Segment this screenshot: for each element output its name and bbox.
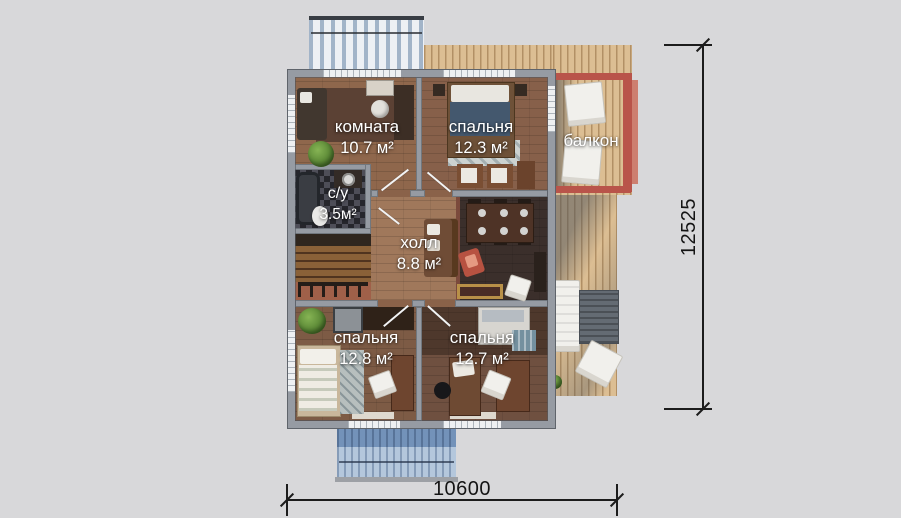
- room-area: 8.8 м²: [364, 254, 474, 275]
- room-area: 12.7 м²: [427, 349, 537, 370]
- roof-top-snowguard: [311, 32, 422, 34]
- room-area: 12.3 м²: [426, 138, 536, 159]
- window: [443, 70, 515, 77]
- room-label-hall: холл 8.8 м²: [364, 232, 474, 276]
- room-label-komnata: комната 10.7 м²: [312, 116, 422, 160]
- balcony-rail-top: [553, 73, 631, 80]
- floor-plan: комната 10.7 м² спальня 12.3 м² балкон с…: [0, 0, 901, 518]
- room-name: с/у: [288, 184, 388, 205]
- room-label-bedroom-top: спальня 12.3 м²: [426, 116, 536, 160]
- dimension-value-width: 10600: [402, 478, 522, 500]
- balcony-rail-bottom: [553, 186, 631, 193]
- room-label-bedroom-left: спальня 12.8 м²: [311, 327, 421, 371]
- window: [288, 330, 295, 392]
- daybed: [579, 290, 619, 344]
- window: [443, 421, 501, 428]
- room-name: комната: [312, 116, 422, 138]
- window: [323, 70, 401, 77]
- room-name: холл: [364, 232, 474, 254]
- room-name: спальня: [427, 327, 537, 349]
- balcony-door: [548, 86, 555, 132]
- room-area: 10.7 м²: [312, 138, 422, 159]
- window: [348, 421, 400, 428]
- room-name: спальня: [426, 116, 536, 138]
- room-label-bedroom-right: спальня 12.7 м²: [427, 327, 537, 371]
- dimension-value-height: 12525: [678, 177, 700, 277]
- window: [288, 95, 295, 153]
- roof-bottom-snowguard: [339, 461, 454, 463]
- room-label-balcony: балкон: [543, 130, 639, 152]
- roof-top-ridge: [309, 16, 424, 20]
- room-label-bathroom: с/у 3.5м²: [288, 184, 388, 225]
- room-name: спальня: [311, 327, 421, 349]
- roof-top: [309, 16, 424, 72]
- room-area: 12.8 м²: [311, 349, 421, 370]
- dimension-line: [702, 44, 704, 410]
- balcony-chair: [564, 81, 606, 127]
- room-area: 3.5м²: [288, 205, 388, 225]
- room-name: балкон: [543, 130, 639, 152]
- roof-bottom-upper: [337, 428, 456, 447]
